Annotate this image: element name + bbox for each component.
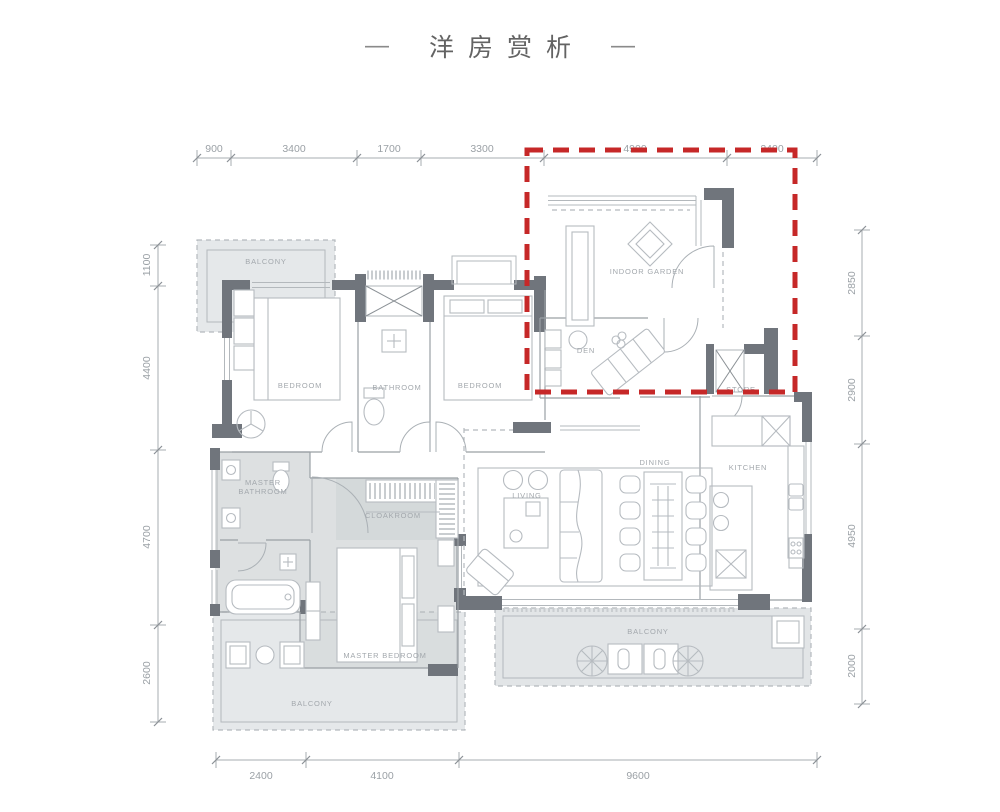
room-label-den: DEN [577,346,595,355]
dim-label: 4700 [141,525,153,549]
lounge-chair-icon [590,328,665,396]
floor-plan-drawing: 900 3400 1700 3300 4900 2400 1100 4400 4… [0,0,1000,812]
dim-label: 3300 [470,143,494,155]
dim-label: 2400 [249,770,273,782]
dim-label: 4400 [141,356,153,380]
dimension-right: 2850 2900 4950 2000 [846,226,870,708]
garden-bench-icon [566,226,594,349]
dimension-left: 1100 4400 4700 2600 [141,241,166,726]
dim-label: 3400 [282,143,306,155]
shaft-icon [366,286,422,316]
room-label-master-bathroom: BATHROOM [238,487,287,496]
shoe-cabinet-icon [545,330,561,386]
dim-label: 9600 [626,770,650,782]
room-label-bedroom-mid: BEDROOM [458,381,502,390]
dim-label: 2850 [846,271,858,295]
room-label-bathroom: BATHROOM [372,383,421,392]
dim-label: 2000 [846,654,858,678]
room-label-balcony-top: BALCONY [245,257,286,266]
dim-label: 2600 [141,661,153,685]
garden-diamond-icon [628,222,672,266]
floor-plan-page: — 洋房赏析 — 900 3400 1700 3300 4900 [0,0,1000,812]
dining-furniture [620,472,706,580]
room-label-kitchen: KITCHEN [729,463,768,472]
room-label-master-bathroom: MASTER [245,478,281,487]
room-label-cloakroom: CLOAKROOM [365,511,421,520]
dim-label: 1100 [141,254,153,277]
room-label-dining: DINING [639,458,670,467]
balcony-chairs [226,642,304,668]
room-label-living: LIVING [512,491,541,500]
dim-label: 4100 [370,770,394,782]
dim-label: 900 [205,143,223,155]
dim-label: 4950 [846,524,858,548]
room-label-bedroom-left: BEDROOM [278,381,322,390]
room-label-balcony-br: BALCONY [627,627,668,636]
dimension-top: 900 3400 1700 3300 4900 2400 [193,143,821,166]
kitchen-counters [710,416,804,590]
dimension-bottom: 2400 4100 9600 [212,752,821,782]
room-label-master-bedroom: MASTER BEDROOM [343,651,426,660]
dim-label: 2900 [846,378,858,402]
room-label-balcony-bl: BALCONY [291,699,332,708]
dim-label: 1700 [377,143,401,155]
bathroom-fixtures [364,330,406,425]
room-label-indoor-garden: INDOOR GARDEN [610,267,685,276]
